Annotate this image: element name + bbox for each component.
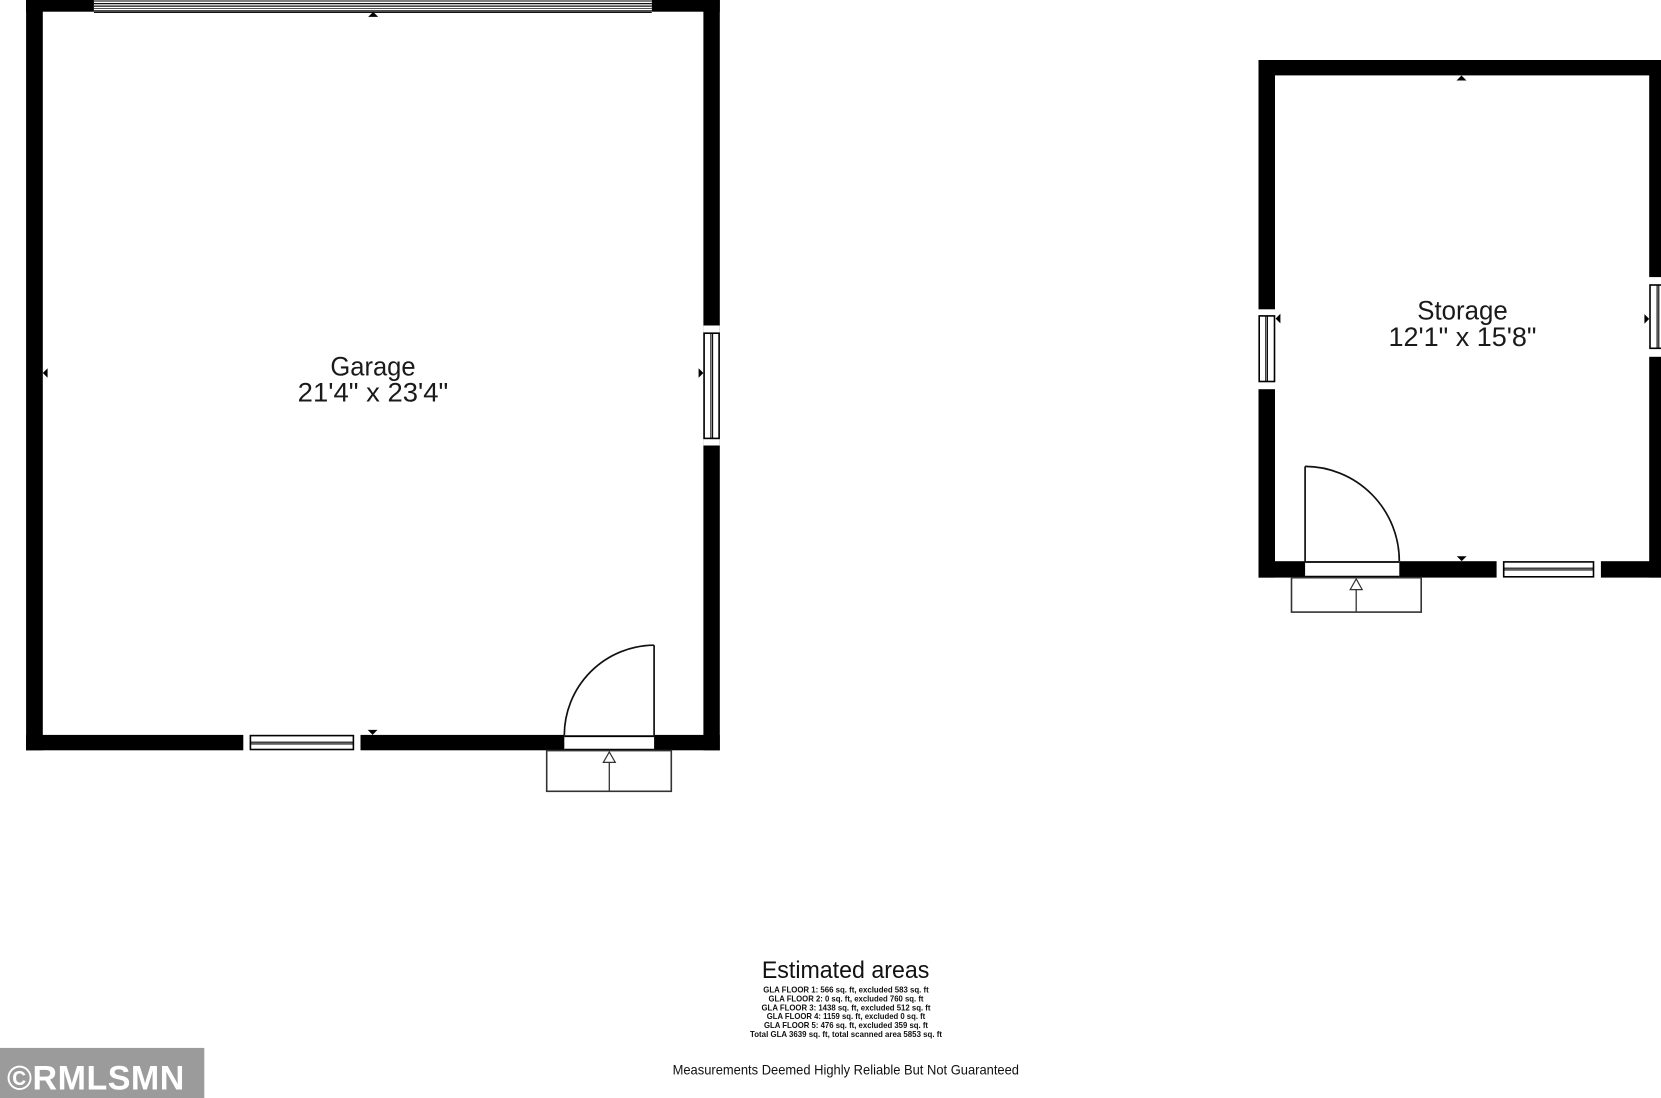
- svg-text:21'4" x 23'4": 21'4" x 23'4": [298, 378, 449, 408]
- svg-text:12'1" x 15'8": 12'1" x 15'8": [1389, 322, 1537, 352]
- svg-text:GLA FLOOR 5: 476 sq. ft, exclu: GLA FLOOR 5: 476 sq. ft, excluded 359 sq…: [764, 1021, 928, 1030]
- svg-text:GLA FLOOR 4: 1159 sq. ft, excl: GLA FLOOR 4: 1159 sq. ft, excluded 0 sq.…: [767, 1012, 926, 1021]
- svg-text:Total GLA 3639 sq. ft, total s: Total GLA 3639 sq. ft, total scanned are…: [750, 1030, 942, 1039]
- svg-text:GLA FLOOR 3: 1438 sq. ft, excl: GLA FLOOR 3: 1438 sq. ft, excluded 512 s…: [762, 1003, 931, 1012]
- svg-text:Estimated areas: Estimated areas: [762, 957, 930, 984]
- svg-text:GLA FLOOR 1: 566 sq. ft, exclu: GLA FLOOR 1: 566 sq. ft, excluded 583 sq…: [763, 985, 929, 994]
- svg-text:©RMLSMN: ©RMLSMN: [7, 1059, 184, 1097]
- svg-text:Measurements Deemed Highly Rel: Measurements Deemed Highly Reliable But …: [673, 1062, 1019, 1078]
- svg-text:GLA FLOOR 2: 0 sq. ft, exclude: GLA FLOOR 2: 0 sq. ft, excluded 760 sq. …: [769, 994, 924, 1003]
